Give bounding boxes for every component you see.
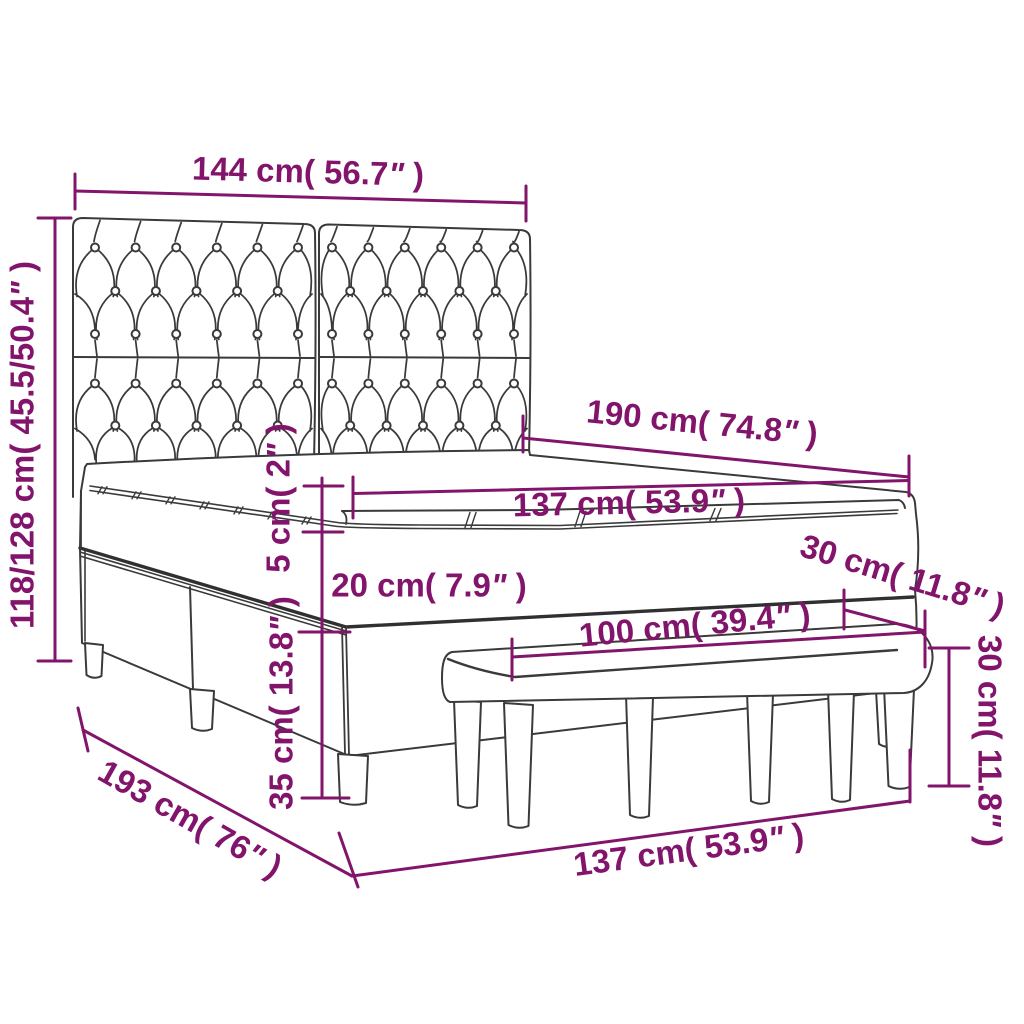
svg-text:137 cm( 53.9" ): 137 cm( 53.9" ) bbox=[512, 481, 745, 523]
svg-text:144 cm( 56.7" ): 144 cm( 56.7" ) bbox=[192, 149, 425, 192]
svg-text:30 cm( 11.8" ): 30 cm( 11.8" ) bbox=[971, 635, 1008, 847]
svg-text:5 cm( 2" ): 5 cm( 2" ) bbox=[260, 423, 297, 573]
svg-text:35 cm( 13.8" ): 35 cm( 13.8" ) bbox=[263, 596, 300, 810]
svg-text:20 cm( 7.9" ): 20 cm( 7.9" ) bbox=[331, 567, 526, 604]
svg-text:118/128 cm( 45.5/50.4" ): 118/128 cm( 45.5/50.4" ) bbox=[4, 261, 41, 629]
